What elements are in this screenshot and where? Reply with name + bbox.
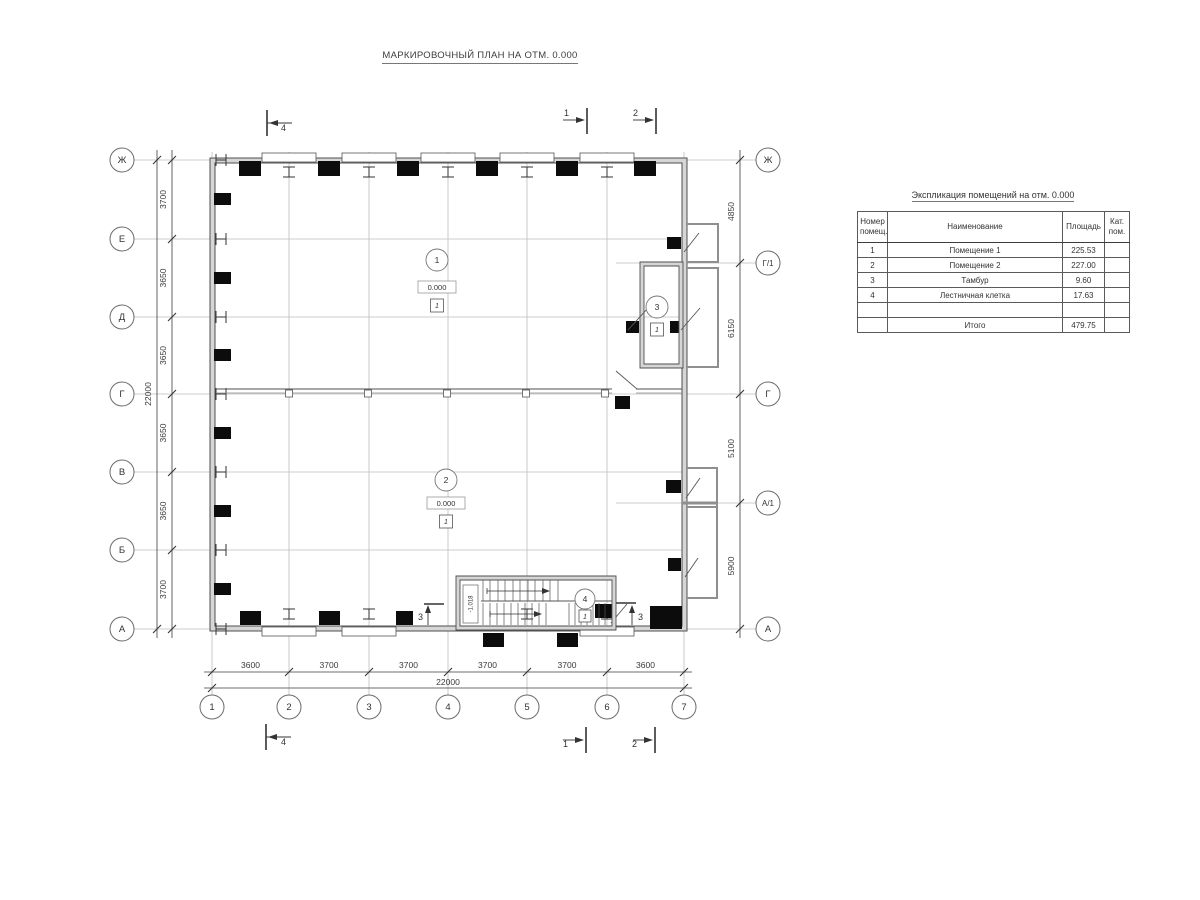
dim-left-total: 22000	[143, 382, 153, 406]
section-1-top-label: 1	[564, 108, 569, 118]
room-schedule-title: Экспликация помещений на отм. 0.000	[857, 190, 1129, 200]
room-4-floor-type: 1	[583, 614, 587, 621]
axis-label-3: 3	[366, 702, 371, 713]
schedule-header-row: Номер помещ. Наименование Площадь Кат. п…	[858, 212, 1130, 243]
col-header-area: Площадь	[1063, 212, 1105, 243]
room-1-elevation: 0.000	[428, 283, 447, 292]
axis-label-7: 7	[681, 702, 686, 713]
room-3-number: 3	[655, 302, 660, 312]
section-1-bottom-label: 1	[563, 739, 568, 749]
stair-elevation-label: -1.018	[469, 595, 475, 613]
col-header-number: Номер помещ.	[858, 212, 888, 243]
room-1-floor-type: 1	[435, 303, 439, 310]
stair-direction-arrows	[487, 588, 550, 617]
dim-bottom-4: 3700	[478, 660, 497, 670]
pier-columns	[214, 161, 683, 647]
dim-bottom-6: 3600	[636, 660, 655, 670]
room-1-number: 1	[435, 255, 440, 265]
dim-left-3: 3650	[158, 346, 168, 365]
floor-plan-canvas: 3700 3650 3650 3650 3650 3700 22000 4850…	[0, 0, 1200, 900]
axis-label-g1: Г/1	[762, 259, 774, 268]
axis-label-a-left: А	[119, 624, 126, 635]
section-markers: 4 1 2 4 1 2 3	[266, 108, 656, 753]
dim-left-1: 3700	[158, 190, 168, 209]
section-2-bottom-label: 2	[632, 739, 637, 749]
axis-label-d: Д	[119, 312, 126, 323]
axis-label-g-left: Г	[119, 389, 124, 400]
axis-label-1: 1	[209, 702, 214, 713]
axis-label-5: 5	[524, 702, 529, 713]
room-4-number: 4	[583, 594, 588, 604]
drawing-sheet: МАРКИРОВОЧНЫЙ ПЛАН НА ОТМ. 0.000	[0, 0, 1200, 900]
room-schedule-table: Номер помещ. Наименование Площадь Кат. п…	[857, 211, 1130, 333]
col-header-category: Кат. пом.	[1105, 212, 1130, 243]
dim-left-6: 3700	[158, 580, 168, 599]
section-3-right-label: 3	[638, 612, 643, 622]
schedule-row: 2 Помещение 2 227.00	[858, 258, 1130, 273]
exterior-porches	[683, 224, 718, 598]
axis-label-4: 4	[445, 702, 450, 713]
room-2-floor-type: 1	[444, 519, 448, 526]
room-schedule: Экспликация помещений на отм. 0.000 Номе…	[857, 190, 1129, 333]
dim-bottom-3: 3700	[399, 660, 418, 670]
axis-label-zh-left: Ж	[118, 155, 127, 166]
axis-label-a-right: А	[765, 624, 772, 635]
dim-right-2: 6150	[726, 319, 736, 338]
partition-wall	[216, 389, 682, 397]
dim-bottom-total: 22000	[436, 677, 460, 687]
axis-label-zh-right: Ж	[764, 155, 773, 166]
room-2-elevation: 0.000	[437, 499, 456, 508]
section-4-top-label: 4	[281, 123, 286, 133]
section-2-top-label: 2	[633, 108, 638, 118]
dim-left-2: 3650	[158, 268, 168, 287]
axis-label-a1: А/1	[762, 499, 775, 508]
schedule-row: 1 Помещение 1 225.53	[858, 243, 1130, 258]
axis-label-2: 2	[286, 702, 291, 713]
axis-label-v: В	[119, 467, 125, 478]
dim-right-1: 4850	[726, 202, 736, 221]
section-3-left-label: 3	[418, 612, 423, 622]
schedule-row: 3 Тамбур 9.60	[858, 273, 1130, 288]
room-tags: 1 0.000 1 2 0.000 1 3 1 4 1	[418, 249, 668, 622]
schedule-row: 4 Лестничная клетка 17.63	[858, 288, 1130, 303]
col-header-name: Наименование	[888, 212, 1063, 243]
axis-label-e: Е	[119, 234, 125, 245]
room-3-floor-type: 1	[655, 327, 659, 334]
dim-bottom-1: 3600	[241, 660, 260, 670]
dim-right-3: 5100	[726, 439, 736, 458]
section-4-bottom-label: 4	[281, 737, 286, 747]
ibeam-column-icons	[216, 154, 613, 635]
dim-left-5: 3650	[158, 501, 168, 520]
dim-right-4: 5900	[726, 556, 736, 575]
schedule-total-row: Итого 479.75	[858, 318, 1130, 333]
room-2-number: 2	[444, 475, 449, 485]
dim-bottom-5: 3700	[558, 660, 577, 670]
dim-bottom-2: 3700	[320, 660, 339, 670]
schedule-empty-row	[858, 303, 1130, 318]
dim-left-4: 3650	[158, 423, 168, 442]
schedule-total-value: 479.75	[1063, 318, 1105, 333]
schedule-total-label: Итого	[888, 318, 1063, 333]
axis-label-b: Б	[119, 545, 125, 556]
axis-label-g-right: Г	[765, 389, 770, 400]
axis-label-6: 6	[604, 702, 609, 713]
